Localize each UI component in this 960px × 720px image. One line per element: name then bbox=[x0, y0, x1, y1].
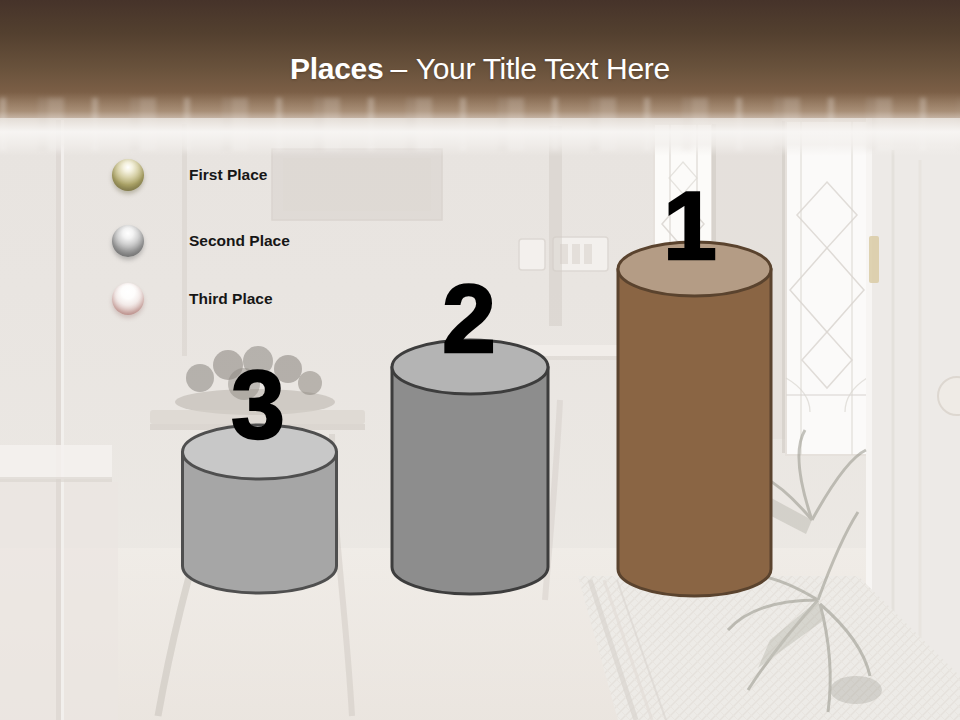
podium-cylinder-first-place: 1 bbox=[618, 172, 771, 596]
legend-item-third-place: Third Place bbox=[112, 282, 273, 316]
podium-cylinder-third-place: 3 bbox=[183, 351, 337, 593]
rank-number-3: 3 bbox=[231, 351, 284, 458]
rank-number-1: 1 bbox=[663, 172, 716, 279]
silver-sphere-icon bbox=[112, 225, 144, 257]
cylinder-body bbox=[618, 269, 771, 596]
rank-number-2: 2 bbox=[442, 265, 495, 372]
legend-label: Second Place bbox=[189, 232, 290, 250]
legend-item-second-place: Second Place bbox=[112, 224, 290, 258]
cylinder-body bbox=[392, 367, 548, 594]
slide-canvas: 3 2 1 Places–Your Title Text Here First … bbox=[0, 0, 960, 720]
legend-label: Third Place bbox=[189, 290, 273, 308]
bronze-sphere-icon bbox=[112, 283, 144, 315]
gold-sphere-icon bbox=[112, 159, 144, 191]
legend-item-first-place: First Place bbox=[112, 158, 267, 192]
legend-label: First Place bbox=[189, 166, 267, 184]
podium-diagram: 3 2 1 bbox=[0, 0, 960, 720]
podium-cylinder-second-place: 2 bbox=[392, 265, 548, 594]
